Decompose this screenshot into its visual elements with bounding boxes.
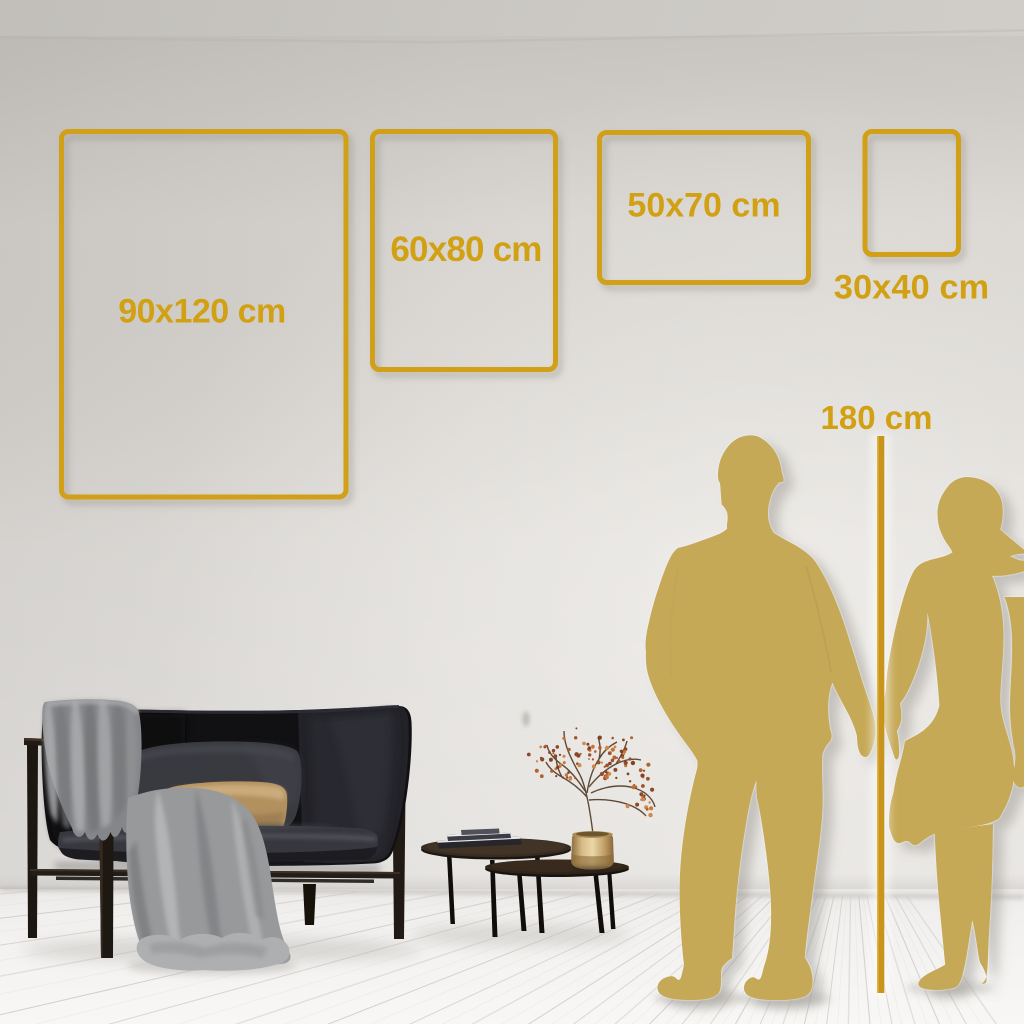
svg-text:30x40 cm: 30x40 cm xyxy=(834,269,989,307)
svg-text:180 cm: 180 cm xyxy=(821,399,933,436)
svg-text:60x80 cm: 60x80 cm xyxy=(390,230,541,269)
svg-text:50x70 cm: 50x70 cm xyxy=(627,187,780,225)
svg-text:90x120 cm: 90x120 cm xyxy=(118,293,286,331)
